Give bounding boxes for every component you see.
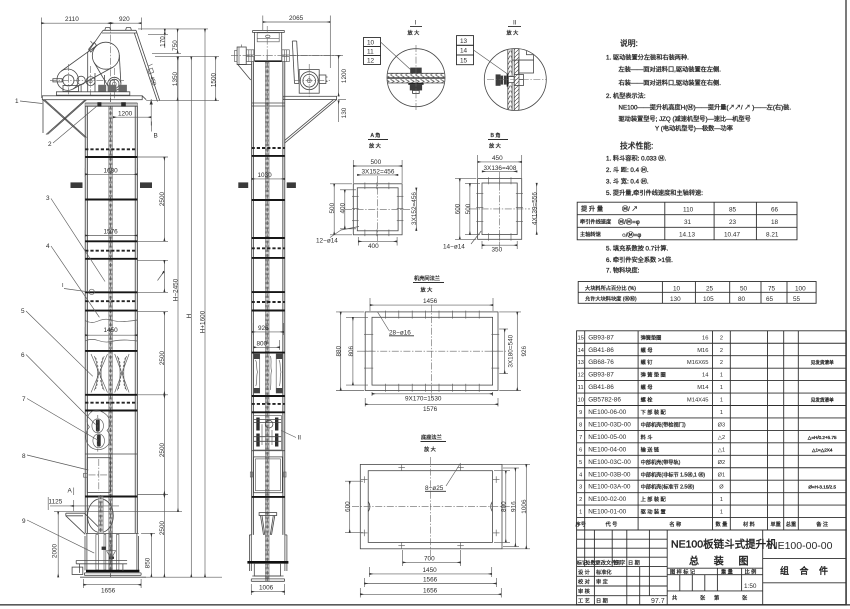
svg-text:NE100-01-00: NE100-01-00	[588, 509, 626, 516]
svg-text:500: 500	[371, 159, 382, 166]
svg-text:100: 100	[795, 286, 806, 293]
svg-text:1: 1	[15, 98, 19, 105]
svg-text:500: 500	[465, 203, 472, 214]
svg-text:5: 5	[579, 460, 582, 466]
svg-text:12: 12	[578, 373, 584, 379]
svg-text:Ø1: Ø1	[718, 472, 725, 478]
svg-text:1656: 1656	[423, 587, 438, 594]
svg-text:18: 18	[771, 219, 779, 226]
svg-text:NE100-06-00: NE100-06-00	[588, 409, 626, 416]
svg-text:3: 3	[46, 195, 50, 202]
svg-text:110: 110	[683, 207, 694, 214]
svg-text:3X180=540: 3X180=540	[508, 334, 515, 367]
svg-text:3: 3	[579, 485, 582, 491]
svg-text:下 部 装 配: 下 部 装 配	[641, 408, 667, 416]
svg-text:△1: △1	[718, 447, 725, 453]
svg-text:14: 14	[460, 48, 468, 55]
svg-text:2. 机型表示法:: 2. 机型表示法:	[606, 92, 646, 100]
svg-text:Ø2: Ø2	[718, 460, 725, 466]
svg-text:55: 55	[793, 296, 801, 303]
svg-text:见发货清单: 见发货清单	[811, 397, 834, 404]
svg-text:1500: 1500	[210, 72, 217, 87]
svg-text:2110: 2110	[65, 16, 79, 23]
svg-text:说明:: 说明:	[620, 38, 638, 48]
svg-text:400: 400	[340, 202, 347, 213]
svg-text:NE100-04-00: NE100-04-00	[588, 446, 626, 453]
svg-text:66: 66	[771, 207, 779, 214]
svg-text:1200: 1200	[118, 110, 133, 117]
svg-text:螺 钉: 螺 钉	[641, 358, 653, 366]
svg-text:GB93-87: GB93-87	[588, 334, 614, 341]
svg-text:2500: 2500	[159, 520, 166, 535]
svg-text:代 号: 代 号	[605, 520, 617, 528]
svg-text:GB41-86: GB41-86	[588, 347, 614, 354]
svg-text:1450: 1450	[104, 327, 119, 334]
svg-text:H: H	[186, 313, 193, 318]
svg-text:450: 450	[492, 155, 503, 162]
svg-text:50: 50	[740, 286, 748, 293]
svg-text:见发货清单: 见发货清单	[811, 359, 834, 366]
svg-text:8.21: 8.21	[766, 232, 779, 239]
svg-text:1030: 1030	[258, 172, 273, 179]
svg-text:750: 750	[172, 40, 179, 51]
svg-text:500: 500	[329, 202, 336, 213]
svg-text:I: I	[415, 20, 417, 27]
svg-text:1. 料斗容积: 0.033 Ⓜ.: 1. 料斗容积: 0.033 Ⓜ.	[606, 155, 666, 163]
svg-text:放 大: 放 大	[369, 142, 381, 150]
svg-text:螺 母: 螺 母	[641, 383, 653, 391]
svg-text:弹簧垫圈: 弹簧垫圈	[641, 333, 662, 341]
svg-text:11: 11	[367, 49, 374, 56]
svg-text:97.7: 97.7	[651, 598, 665, 605]
svg-text:螺 栓: 螺 栓	[641, 396, 654, 404]
svg-text:1: 1	[720, 497, 723, 503]
svg-text:第: 第	[714, 594, 719, 602]
svg-text:总 装 图: 总 装 图	[689, 555, 755, 568]
svg-text:1: 1	[720, 398, 723, 404]
svg-text:8: 8	[22, 453, 26, 460]
svg-text:M16X65: M16X65	[687, 360, 709, 366]
svg-text:1006: 1006	[521, 499, 528, 514]
svg-text:5. 提升量,牵引件线速度和主轴转速:: 5. 提升量,牵引件线速度和主轴转速:	[606, 189, 703, 197]
svg-text:2500: 2500	[159, 191, 166, 206]
svg-text:日 期: 日 期	[628, 560, 640, 567]
svg-text:3X152=456: 3X152=456	[411, 192, 418, 225]
svg-text:85: 85	[729, 207, 737, 214]
svg-text:M14: M14	[697, 385, 709, 391]
svg-text:A 角: A 角	[371, 131, 381, 139]
svg-text:NE100-03A-00: NE100-03A-00	[588, 484, 631, 491]
svg-text:65: 65	[766, 296, 774, 303]
svg-text:6. 牵引件安全系数 >1倍.: 6. 牵引件安全系数 >1倍.	[606, 256, 673, 264]
svg-text:NE100-02-00: NE100-02-00	[588, 496, 626, 503]
svg-text:920: 920	[119, 16, 130, 23]
svg-text:12−ø14: 12−ø14	[316, 238, 338, 245]
svg-text:4: 4	[46, 243, 50, 250]
svg-text:806: 806	[348, 345, 355, 356]
svg-text:14: 14	[702, 373, 709, 379]
svg-text:14.13: 14.13	[679, 232, 695, 239]
svg-text:总重: 总重	[786, 520, 796, 528]
svg-text:350: 350	[492, 247, 503, 254]
svg-text:NE100——提升机高度H(Ⓜ)——提升量(↗↗/ ↗: NE100——提升机高度H(Ⓜ)——提升量(↗↗/ ↗ )——左(右)装.	[619, 104, 792, 112]
svg-text:驱 动 装 置: 驱 动 装 置	[641, 508, 666, 516]
svg-text:张: 张	[742, 594, 748, 602]
svg-text:II: II	[513, 20, 517, 27]
svg-text:B 角: B 角	[491, 131, 501, 139]
svg-text:926: 926	[258, 325, 269, 332]
svg-text:△=H/0.2+5.75: △=H/0.2+5.75	[808, 435, 837, 440]
svg-text:3X152=456: 3X152=456	[362, 168, 395, 175]
svg-text:9: 9	[579, 410, 582, 416]
svg-text:9X170=1530: 9X170=1530	[405, 395, 442, 402]
svg-text:设 计: 设 计	[578, 568, 590, 576]
svg-text:9: 9	[22, 518, 26, 525]
svg-text:○/Ⓜ=φ: ○/Ⓜ=φ	[622, 231, 641, 239]
svg-text:校 对: 校 对	[578, 578, 590, 586]
svg-text:序号: 序号	[576, 520, 586, 528]
svg-text:1656: 1656	[101, 588, 116, 595]
svg-text:916: 916	[510, 501, 517, 512]
svg-text:B: B	[154, 133, 158, 140]
svg-text:7: 7	[22, 396, 26, 403]
svg-text:材 料: 材 料	[743, 520, 755, 528]
svg-text:2500: 2500	[159, 442, 166, 457]
svg-text:日 期: 日 期	[596, 598, 608, 605]
svg-text:880: 880	[336, 345, 343, 356]
svg-text:926: 926	[521, 345, 528, 356]
svg-text:机壳间法兰: 机壳间法兰	[414, 274, 440, 282]
svg-text:31: 31	[684, 219, 692, 226]
svg-text:共: 共	[672, 594, 677, 602]
svg-text:1: 1	[579, 510, 582, 516]
svg-text:比 例: 比 例	[745, 568, 757, 576]
svg-text:NE100-00-00: NE100-00-00	[770, 540, 833, 552]
svg-text:NE100-03D-00: NE100-03D-00	[588, 422, 631, 429]
svg-text:放 大: 放 大	[489, 142, 501, 150]
svg-text:输 送 链: 输 送 链	[641, 445, 660, 453]
svg-text:名 称: 名 称	[669, 520, 681, 528]
svg-text:1: 1	[720, 385, 723, 391]
svg-text:中部机壳(带导轨): 中部机壳(带导轨)	[641, 458, 681, 466]
svg-text:800: 800	[501, 501, 508, 512]
svg-text:14: 14	[578, 348, 584, 354]
svg-text:大块料所占百分比 (%): 大块料所占百分比 (%)	[585, 284, 636, 292]
svg-text:中部机壳(标准节 2.5Ⓜ): 中部机壳(标准节 2.5Ⓜ)	[641, 483, 695, 491]
svg-text:GB93-87: GB93-87	[588, 372, 614, 379]
svg-text:Ø: Ø	[719, 485, 724, 491]
svg-text:NE100-03B-00: NE100-03B-00	[588, 471, 631, 478]
svg-text:13: 13	[578, 360, 584, 366]
svg-text:13: 13	[460, 38, 468, 45]
svg-text:2500: 2500	[159, 350, 166, 365]
svg-text:提 升 量: 提 升 量	[581, 205, 603, 213]
svg-text:1456: 1456	[423, 298, 438, 305]
svg-text:主轴转速: 主轴转速	[580, 230, 601, 238]
svg-text:1125: 1125	[49, 499, 63, 506]
svg-text:Ø=H-3.15/2.5: Ø=H-3.15/2.5	[808, 485, 836, 490]
svg-text:放 大: 放 大	[424, 445, 436, 453]
svg-text:A: A	[68, 488, 73, 495]
svg-text:Y (电动机型号)—极数—功率: Y (电动机型号)—极数—功率	[655, 125, 733, 133]
svg-text:牵引件线速度: 牵引件线速度	[580, 218, 611, 226]
svg-text:75: 75	[768, 286, 776, 293]
svg-text:10: 10	[673, 286, 681, 293]
svg-text:600: 600	[345, 501, 352, 512]
svg-text:1: 1	[720, 410, 723, 416]
svg-text:Ⓜ/ ↗: Ⓜ/ ↗	[622, 205, 638, 213]
svg-text:15: 15	[578, 335, 584, 341]
svg-text:标准化: 标准化	[596, 568, 612, 576]
svg-text:1: 1	[720, 510, 723, 516]
svg-text:M16: M16	[697, 348, 708, 354]
svg-text:GB68-76: GB68-76	[588, 359, 614, 366]
svg-text:允许大块料块度 (ⓂⓂ): 允许大块料块度 (ⓂⓂ)	[585, 295, 637, 303]
svg-text:80: 80	[738, 296, 746, 303]
svg-text:5: 5	[21, 308, 25, 315]
svg-text:170: 170	[160, 36, 167, 47]
svg-text:600: 600	[455, 203, 462, 214]
svg-text:签 字: 签 字	[614, 559, 626, 567]
svg-text:GB5782-86: GB5782-86	[588, 397, 621, 404]
svg-text:2: 2	[720, 335, 723, 341]
svg-text:11: 11	[578, 385, 584, 391]
svg-text:1200: 1200	[341, 68, 348, 83]
svg-text:1450: 1450	[423, 567, 438, 574]
svg-text:4X139=556: 4X139=556	[531, 192, 538, 225]
svg-text:700: 700	[424, 555, 435, 562]
svg-text:6: 6	[579, 447, 582, 453]
svg-text:放 大: 放 大	[507, 29, 519, 37]
svg-text:NE100板链斗式提升机: NE100板链斗式提升机	[671, 538, 777, 551]
svg-text:料 斗: 料 斗	[641, 433, 653, 441]
svg-text:6: 6	[21, 352, 25, 359]
svg-text:右装——面对进料口,驱动装置在右侧.: 右装——面对进料口,驱动装置在右侧.	[619, 79, 722, 87]
svg-text:II: II	[298, 435, 302, 442]
svg-text:23: 23	[729, 219, 737, 226]
svg-text:4: 4	[579, 472, 582, 478]
svg-text:7: 7	[579, 435, 582, 441]
svg-text:备 注: 备 注	[816, 520, 828, 528]
svg-text:审 核: 审 核	[578, 587, 590, 595]
svg-text:3. 斗 宽: 0.4 Ⓜ.: 3. 斗 宽: 0.4 Ⓜ.	[606, 178, 649, 186]
svg-text:审 定: 审 定	[596, 578, 608, 586]
svg-text:10: 10	[578, 398, 584, 404]
svg-text:GB41-86: GB41-86	[588, 384, 614, 391]
svg-text:驱动装置型号; JZQ (减速机型号)—速比—机型号: 驱动装置型号; JZQ (减速机型号)—速比—机型号	[619, 115, 751, 123]
svg-text:1680: 1680	[104, 167, 119, 174]
svg-text:放 大: 放 大	[408, 29, 420, 37]
svg-text:5. 填充系数按 0.7计算.: 5. 填充系数按 0.7计算.	[606, 245, 669, 253]
svg-text:1576: 1576	[423, 406, 438, 413]
svg-text:△2: △2	[718, 435, 725, 441]
svg-text:放 大: 放 大	[421, 286, 433, 294]
svg-text:上 部 装 配: 上 部 装 配	[641, 495, 667, 503]
svg-text:7. 物料块度:: 7. 物料块度:	[606, 267, 640, 275]
svg-text:中部机壳(非标节 1.5Ⓜ,1 Ⓜ): 中部机壳(非标节 1.5Ⓜ,1 Ⓜ)	[641, 470, 706, 478]
svg-text:2: 2	[720, 348, 723, 354]
svg-text:技术性能:: 技术性能:	[620, 141, 653, 151]
svg-text:弹 簧 垫 圈: 弹 簧 垫 圈	[641, 371, 666, 379]
svg-text:NE100-05-00: NE100-05-00	[588, 434, 626, 441]
svg-text:H+1600: H+1600	[200, 310, 207, 333]
svg-text:1006: 1006	[259, 584, 274, 591]
svg-text:△1=△2X4: △1=△2X4	[812, 447, 833, 452]
svg-text:16: 16	[702, 335, 708, 341]
svg-text:Ⓜ/Ⓜ=φ: Ⓜ/Ⓜ=φ	[618, 218, 640, 226]
svg-text:2000: 2000	[52, 543, 59, 558]
svg-text:130: 130	[670, 296, 681, 303]
svg-text:3X136=408: 3X136=408	[484, 165, 517, 172]
svg-text:图 样 标 记: 图 样 标 记	[670, 568, 695, 576]
svg-text:M14X45: M14X45	[687, 398, 709, 404]
svg-text:单重: 单重	[770, 520, 780, 528]
svg-text:H−2450: H−2450	[173, 278, 180, 301]
svg-text:重 量: 重 量	[721, 568, 733, 576]
svg-text:800: 800	[257, 340, 268, 347]
svg-text:NE100-03C-00: NE100-03C-00	[588, 459, 631, 466]
svg-text:14−ø14: 14−ø14	[443, 243, 465, 250]
svg-text:850: 850	[145, 557, 152, 568]
svg-text:10.47: 10.47	[724, 232, 740, 239]
svg-text:10: 10	[367, 40, 375, 47]
svg-text:400: 400	[368, 243, 379, 250]
svg-text:组 合 件: 组 合 件	[780, 565, 832, 576]
svg-text:1. 驱动装置分左装和右装两种.: 1. 驱动装置分左装和右装两种.	[606, 54, 689, 62]
svg-text:2: 2	[720, 360, 723, 366]
svg-text:25: 25	[706, 286, 714, 293]
svg-text:张: 张	[700, 594, 706, 602]
svg-text:2: 2	[579, 497, 582, 503]
svg-text:中部机壳(带检视门): 中部机壳(带检视门)	[641, 421, 686, 429]
svg-text:数 量: 数 量	[715, 520, 727, 528]
svg-text:1: 1	[720, 373, 723, 379]
svg-text:2065: 2065	[289, 15, 304, 22]
svg-text:左装——面对进料口,驱动装置在左侧.: 左装——面对进料口,驱动装置在左侧.	[619, 66, 722, 74]
svg-text:1576: 1576	[104, 229, 119, 236]
svg-text:12: 12	[367, 58, 375, 65]
svg-text:螺 母: 螺 母	[641, 346, 653, 354]
svg-text:130: 130	[341, 107, 348, 118]
svg-text:Ø3: Ø3	[718, 423, 725, 429]
svg-text:1566: 1566	[423, 577, 438, 584]
svg-text:2: 2	[48, 141, 52, 148]
svg-text:15: 15	[460, 57, 468, 64]
svg-text:8: 8	[579, 423, 582, 429]
svg-text:2. 斗 距: 0.4 Ⓜ.: 2. 斗 距: 0.4 Ⓜ.	[606, 166, 649, 174]
svg-text:105: 105	[703, 296, 714, 303]
svg-text:工 艺: 工 艺	[578, 598, 590, 605]
svg-text:1:50: 1:50	[744, 583, 757, 590]
svg-text:底座法兰: 底座法兰	[421, 433, 442, 441]
